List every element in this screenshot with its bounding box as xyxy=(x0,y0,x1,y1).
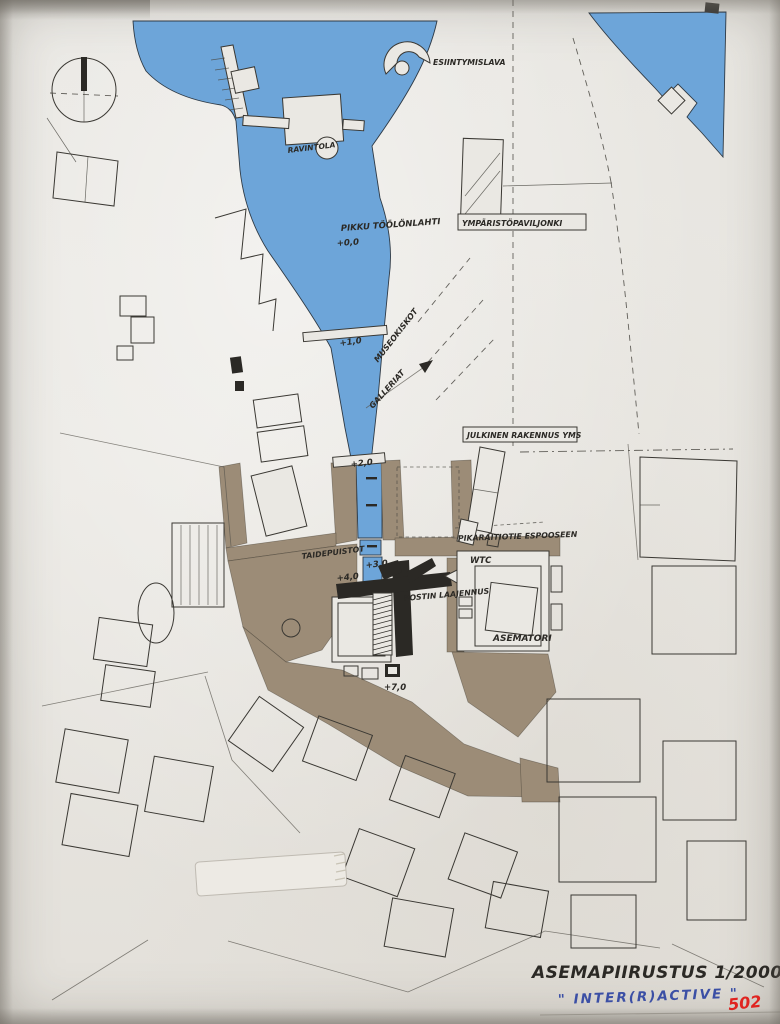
dashed-track-3 xyxy=(436,338,495,400)
pavilion-axis-line xyxy=(503,183,612,186)
building-outline xyxy=(56,729,128,793)
street-line xyxy=(42,672,208,706)
tape-patch xyxy=(195,852,347,896)
tiny-black-building xyxy=(235,381,244,391)
street-line xyxy=(628,444,638,560)
building-outline xyxy=(145,756,214,822)
mark-dash xyxy=(366,477,377,479)
building-outline xyxy=(485,881,548,937)
environment-pavilion xyxy=(461,138,504,215)
bottom-rule xyxy=(540,1012,780,1015)
mark-dash xyxy=(366,504,377,506)
small-building xyxy=(362,668,378,679)
wtc-east-annex xyxy=(551,604,562,630)
pavilion-building xyxy=(461,138,504,215)
sheet-number-handwritten: 502 xyxy=(727,992,762,1014)
building-outline xyxy=(640,457,737,561)
dashed-future-building xyxy=(397,467,459,537)
water-bay-toolonlahti xyxy=(133,21,437,463)
dashdot-line-east xyxy=(520,449,733,452)
site-plan-photo: ESIINTYMISLAVA RAVINTOLA PIKKU TÖÖLÖNLAH… xyxy=(0,0,780,1024)
ground-canal-east xyxy=(381,460,404,540)
building-outline xyxy=(93,617,152,666)
compass-icon xyxy=(47,57,118,162)
ravintola-building xyxy=(282,94,343,145)
street-line xyxy=(52,940,148,1000)
building-outline xyxy=(663,741,736,820)
label-elevation-70: +7,0 xyxy=(384,683,406,693)
hatched-platform xyxy=(373,593,392,655)
stage-center xyxy=(395,61,409,75)
cross-foot-notch xyxy=(388,667,397,674)
label-asematori: ASEMATORI xyxy=(492,634,552,644)
building-outline xyxy=(117,346,133,360)
water-bay-northeast xyxy=(589,12,726,157)
galleriat-arrowhead xyxy=(419,360,433,373)
ground-west-strip xyxy=(219,463,247,548)
label-esiintymislava: ESIINTYMISLAVA xyxy=(433,58,506,67)
label-elevation-00: +0,0 xyxy=(337,237,360,249)
label-wtc: WTC xyxy=(470,556,492,566)
dashed-rail-lower xyxy=(611,182,639,434)
dashed-track-1 xyxy=(418,258,470,322)
compass-north-needle xyxy=(81,57,87,91)
tiny-black-building xyxy=(230,356,243,373)
mark-dash xyxy=(367,545,377,547)
building-outline xyxy=(559,797,656,882)
pier-pavilion xyxy=(231,67,259,94)
building-outline xyxy=(652,566,736,654)
building-outline xyxy=(62,793,138,856)
street-line xyxy=(60,433,224,467)
stadium-outline xyxy=(138,583,174,643)
shore-line xyxy=(47,118,76,162)
building-outline xyxy=(101,665,156,708)
building-outline xyxy=(384,898,454,957)
building-outline xyxy=(253,394,301,428)
ground-tail xyxy=(520,758,560,802)
building-outline xyxy=(448,833,517,898)
public-building-body xyxy=(467,447,505,533)
bridge-east xyxy=(343,119,365,130)
site-plan-drawing: ESIINTYMISLAVA RAVINTOLA PIKKU TÖÖLÖNLAH… xyxy=(0,0,780,1024)
building-outline xyxy=(251,466,307,536)
building-outline xyxy=(342,829,415,897)
building-divider xyxy=(85,156,88,202)
building-outline xyxy=(687,841,746,920)
drawing-title: ASEMAPIIRUSTUS 1/2000 xyxy=(530,963,780,983)
building-outline xyxy=(257,426,308,462)
wtc-east-annex xyxy=(551,566,562,592)
ground-canal-west xyxy=(331,462,357,544)
water-canal-strip xyxy=(356,462,382,538)
label-ymparistopaviljonki: YMPÄRISTÖPAVILJONKI xyxy=(462,219,562,228)
drawing-subtitle-handwritten: " INTER(R)ACTIVE " xyxy=(558,986,740,1008)
ground-south-of-wtc xyxy=(452,652,556,737)
dashed-track-2 xyxy=(428,300,483,362)
label-julkinen-rakennus: JULKINEN RAKENNUS YMS xyxy=(465,431,582,440)
building-outline xyxy=(228,696,303,771)
building-outline xyxy=(547,699,640,782)
building-outline xyxy=(120,296,146,316)
building-outline xyxy=(172,523,224,607)
title-block: ASEMAPIIRUSTUS 1/2000 " INTER(R)ACTIVE "… xyxy=(530,963,780,1015)
push-pin-icon xyxy=(705,2,720,13)
dashed-rail-upper xyxy=(573,38,611,182)
building-outline xyxy=(131,317,154,343)
